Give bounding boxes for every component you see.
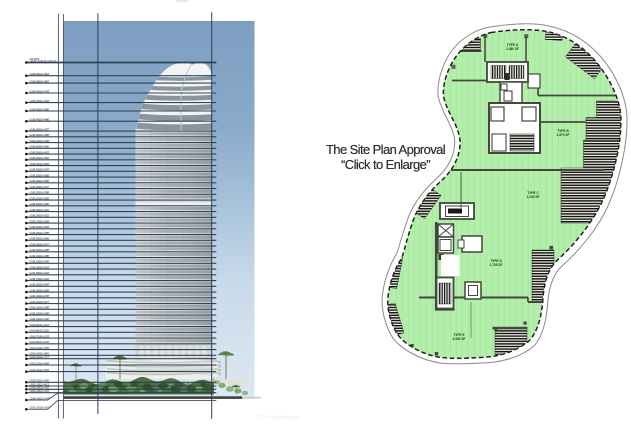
svg-text:LEVEL 44 ELEV +446'-6": LEVEL 44 ELEV +446'-6" bbox=[30, 118, 50, 122]
svg-text:2,080 SF: 2,080 SF bbox=[506, 47, 519, 51]
svg-text:LEVEL 9 ELEV +131'-1": LEVEL 9 ELEV +131'-1" bbox=[30, 323, 50, 327]
svg-text:LEVEL 6 ELEV +104'-4": LEVEL 6 ELEV +104'-4" bbox=[30, 340, 50, 344]
svg-text:LEVEL 3 ELEV +77'-7": LEVEL 3 ELEV +77'-7" bbox=[30, 355, 50, 359]
svg-text:LEVEL 22 ELEV +248'-8": LEVEL 22 ELEV +248'-8" bbox=[30, 248, 50, 252]
svg-text:LEVEL 10 ELEV +140'-0": LEVEL 10 ELEV +140'-0" bbox=[30, 317, 50, 321]
svg-text:LEVEL 45 ELEV +455'-5": LEVEL 45 ELEV +455'-5" bbox=[30, 107, 50, 111]
svg-text:LEVEL 18 ELEV +212'-2": LEVEL 18 ELEV +212'-2" bbox=[30, 271, 50, 275]
svg-text:LEVEL 33 ELEV +347'-7": LEVEL 33 ELEV +347'-7" bbox=[30, 185, 50, 189]
svg-text:LEVEL 15 ELEV +185'-5": LEVEL 15 ELEV +185'-5" bbox=[30, 288, 50, 292]
svg-text:LEVEL 7 ELEV +113'-3": LEVEL 7 ELEV +113'-3" bbox=[30, 334, 50, 338]
svg-text:LEVEL 49 ELEV +491'-1": LEVEL 49 ELEV +491'-1" bbox=[30, 72, 50, 76]
svg-text:LEVEL 32 ELEV +338'-8": LEVEL 32 ELEV +338'-8" bbox=[30, 191, 50, 195]
svg-text:LEVEL 42 ELEV +428'-8": LEVEL 42 ELEV +428'-8" bbox=[30, 133, 50, 137]
svg-text:LEVEL 46 ELEV +464'-4": LEVEL 46 ELEV +464'-4" bbox=[30, 99, 50, 103]
svg-text:1,705 SF: 1,705 SF bbox=[490, 263, 503, 267]
svg-text:LEVEL 5 ELEV +95'-5": LEVEL 5 ELEV +95'-5" bbox=[30, 346, 50, 350]
svg-text:1,570 SF: 1,570 SF bbox=[557, 133, 570, 137]
svg-text:LEVEL 24 ELEV +266'-6": LEVEL 24 ELEV +266'-6" bbox=[30, 237, 50, 241]
svg-text:LEVEL 39 ELEV +401'-1": LEVEL 39 ELEV +401'-1" bbox=[30, 150, 50, 154]
svg-text:LEVEL 25 ELEV +275'-5": LEVEL 25 ELEV +275'-5" bbox=[30, 231, 50, 235]
svg-text:LEVEL 20 ELEV +230'-0": LEVEL 20 ELEV +230'-0" bbox=[30, 260, 50, 264]
svg-text:LEVEL 41 ELEV +419'-9": LEVEL 41 ELEV +419'-9" bbox=[30, 139, 50, 143]
svg-text:LEVEL 21 ELEV +239'-9": LEVEL 21 ELEV +239'-9" bbox=[30, 254, 50, 258]
svg-text:LEVEL 11 ELEV +149'-9": LEVEL 11 ELEV +149'-9" bbox=[30, 311, 50, 315]
svg-text:LEVEL 34 ELEV +356'-6": LEVEL 34 ELEV +356'-6" bbox=[30, 179, 50, 183]
svg-text:LEVEL 23 ELEV +257'-7": LEVEL 23 ELEV +257'-7" bbox=[30, 242, 50, 246]
svg-text:ROOF TOP: ROOF TOP bbox=[30, 57, 40, 61]
svg-text:LEVEL 1 ELEV +59'-9": LEVEL 1 ELEV +59'-9" bbox=[30, 368, 50, 372]
svg-text:LEVEL 8 ELEV +122'-2": LEVEL 8 ELEV +122'-2" bbox=[30, 329, 50, 333]
svg-text:LEVEL 35 ELEV +365'-5": LEVEL 35 ELEV +365'-5" bbox=[30, 173, 50, 177]
svg-text:LEVEL 28 ELEV +302'-2": LEVEL 28 ELEV +302'-2" bbox=[30, 214, 50, 218]
svg-text:LEVEL 26 ELEV +284'-4": LEVEL 26 ELEV +284'-4" bbox=[30, 225, 50, 229]
svg-text:LEVEL 40 ELEV +410'-0": LEVEL 40 ELEV +410'-0" bbox=[30, 145, 50, 149]
svg-text:LEVEL 17 ELEV +203'-3": LEVEL 17 ELEV +203'-3" bbox=[30, 277, 50, 281]
svg-text:LEVEL 29 ELEV +311'-1": LEVEL 29 ELEV +311'-1" bbox=[30, 208, 50, 212]
svg-text:LEVEL 12 ELEV +158'-8": LEVEL 12 ELEV +158'-8" bbox=[30, 306, 50, 310]
svg-text:LEVEL 37 ELEV +383'-3": LEVEL 37 ELEV +383'-3" bbox=[30, 162, 50, 166]
svg-text:LEVEL 16 ELEV +194'-4": LEVEL 16 ELEV +194'-4" bbox=[30, 283, 50, 287]
svg-text:LEVEL 48 ELEV +482'-2": LEVEL 48 ELEV +482'-2" bbox=[30, 79, 50, 83]
svg-text:LEVEL 14 ELEV +176'-6": LEVEL 14 ELEV +176'-6" bbox=[30, 294, 50, 298]
svg-text:2,060 SF: 2,060 SF bbox=[453, 337, 466, 341]
svg-text:(Click to Enlarge): (Click to Enlarge) bbox=[257, 415, 299, 421]
svg-text:LEVEL 43 ELEV +437'-7": LEVEL 43 ELEV +437'-7" bbox=[30, 127, 50, 131]
svg-text:LEVEL 31 ELEV +329'-9": LEVEL 31 ELEV +329'-9" bbox=[30, 196, 50, 200]
svg-text:LEVEL 13 ELEV +167'-7": LEVEL 13 ELEV +167'-7" bbox=[30, 300, 50, 304]
svg-text:LEVEL -3 ELEV +23'-3": LEVEL -3 ELEV +23'-3" bbox=[30, 389, 50, 393]
svg-text:LEVEL 30 ELEV +320'-0": LEVEL 30 ELEV +320'-0" bbox=[30, 202, 50, 206]
svg-text:LEVEL 19 ELEV +221'-1": LEVEL 19 ELEV +221'-1" bbox=[30, 265, 50, 269]
svg-text:LEVEL 38 ELEV +392'-2": LEVEL 38 ELEV +392'-2" bbox=[30, 156, 50, 160]
svg-text:LEVEL -5 ELEV +5'-5": LEVEL -5 ELEV +5'-5" bbox=[30, 406, 50, 410]
svg-text:LEVEL 27 ELEV +293'-3": LEVEL 27 ELEV +293'-3" bbox=[30, 219, 50, 223]
svg-text:LEVEL 47 ELEV +473'-3": LEVEL 47 ELEV +473'-3" bbox=[30, 89, 50, 93]
svg-text:LEVEL 2 ELEV +68'-8": LEVEL 2 ELEV +68'-8" bbox=[30, 361, 50, 365]
svg-text:LEVEL 36 ELEV +374'-4": LEVEL 36 ELEV +374'-4" bbox=[30, 168, 50, 172]
svg-text:LEVEL -4 ELEV +14'-4": LEVEL -4 ELEV +14'-4" bbox=[30, 396, 50, 400]
svg-text:1,040 SF: 1,040 SF bbox=[527, 195, 540, 199]
